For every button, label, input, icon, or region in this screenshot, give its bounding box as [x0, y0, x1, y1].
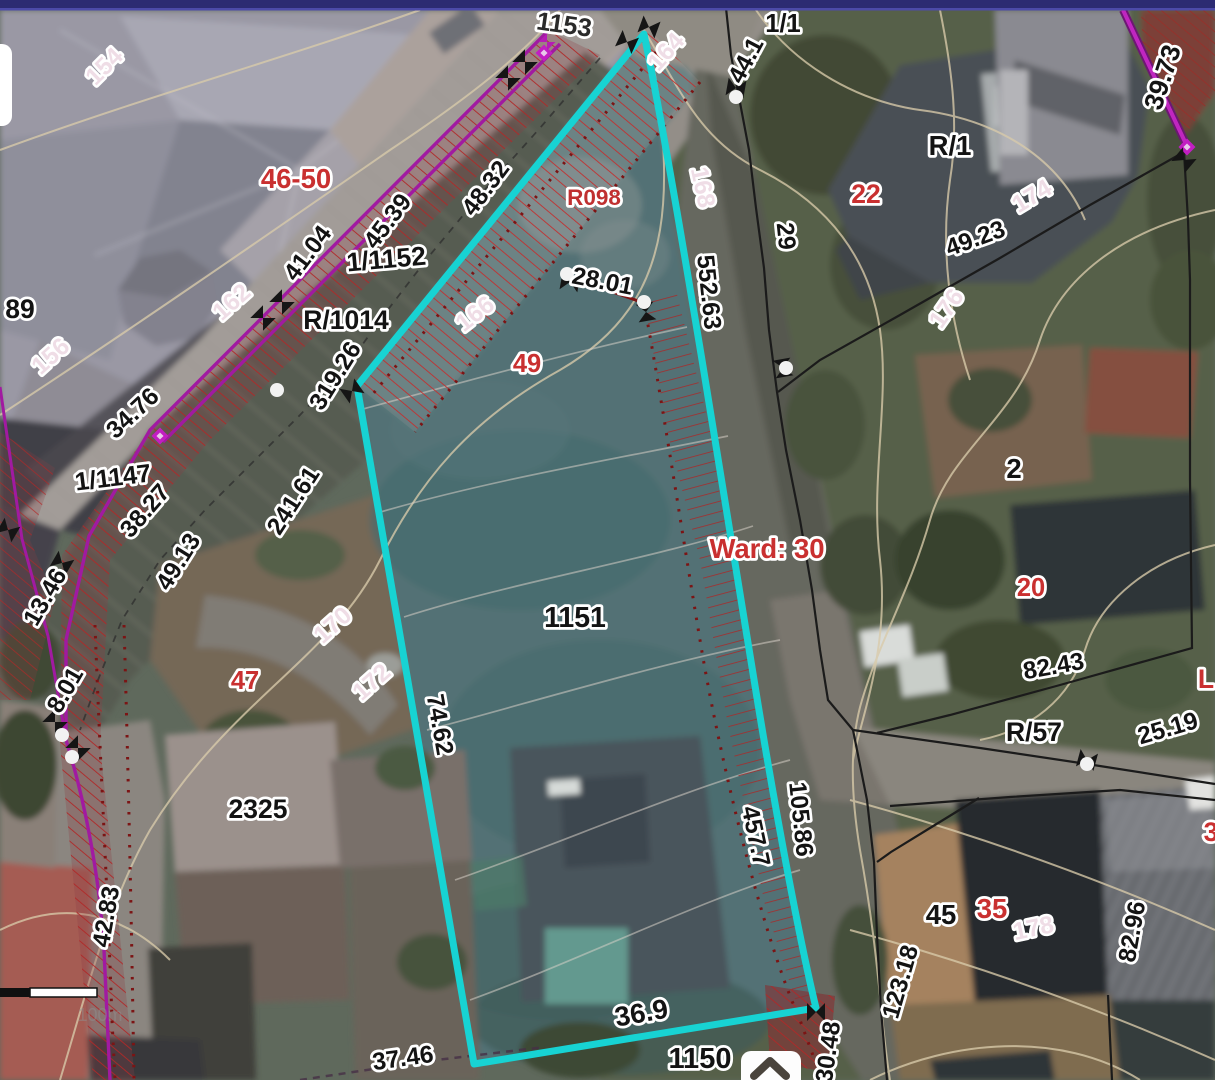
svg-text:1/1: 1/1: [765, 10, 800, 38]
svg-text:22: 22: [851, 179, 880, 209]
svg-text:100m: 100m: [77, 1005, 122, 1025]
svg-text:R098: R098: [567, 185, 621, 210]
svg-text:20: 20: [1017, 574, 1045, 602]
svg-text:R/1014: R/1014: [303, 305, 389, 335]
svg-text:3: 3: [1204, 817, 1215, 847]
svg-text:Ward: 30: Ward: 30: [709, 533, 824, 564]
svg-text:R/57: R/57: [1006, 717, 1062, 747]
svg-text:R/1: R/1: [929, 130, 972, 161]
svg-text:89: 89: [5, 294, 34, 324]
svg-text:2325: 2325: [229, 794, 288, 824]
svg-text:L: L: [1198, 664, 1214, 694]
svg-text:47: 47: [231, 667, 259, 695]
svg-text:49: 49: [513, 350, 541, 378]
svg-text:2: 2: [1006, 453, 1021, 484]
svg-text:1150: 1150: [669, 1043, 732, 1075]
svg-text:45: 45: [926, 899, 957, 930]
svg-text:29: 29: [771, 221, 801, 251]
svg-text:46-50: 46-50: [261, 163, 331, 194]
svg-text:1151: 1151: [544, 602, 606, 634]
svg-text:35: 35: [977, 893, 1008, 924]
